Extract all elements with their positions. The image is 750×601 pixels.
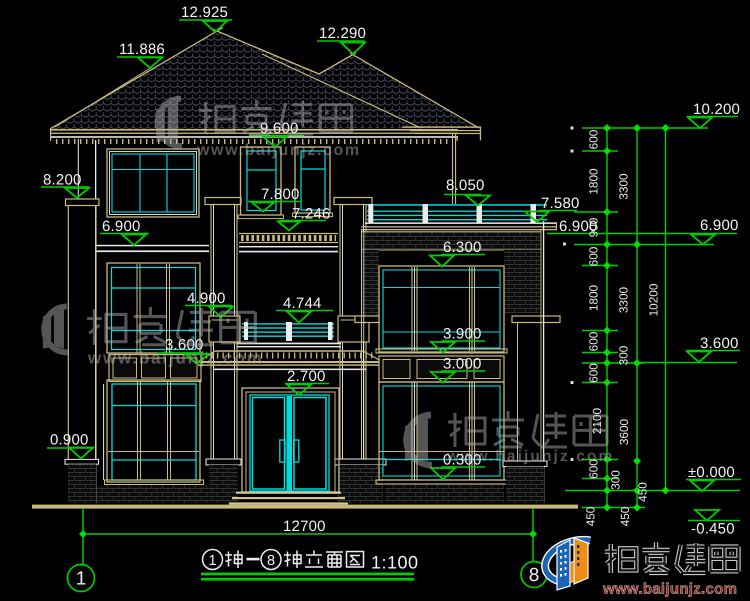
svg-text:3.900: 3.900: [443, 326, 482, 343]
svg-text:3.600: 3.600: [700, 335, 739, 352]
svg-text:1800: 1800: [587, 284, 601, 311]
svg-text:www.baijunjz.com: www.baijunjz.com: [602, 581, 737, 598]
svg-text:6.300: 6.300: [443, 239, 482, 256]
svg-text:11.886: 11.886: [119, 41, 165, 58]
svg-text:www.baijunjz.com: www.baijunjz.com: [87, 349, 264, 368]
svg-text:600: 600: [587, 246, 601, 266]
svg-text:600: 600: [587, 363, 601, 383]
svg-text:8: 8: [267, 553, 275, 569]
svg-text:0.900: 0.900: [50, 432, 89, 449]
svg-text:10200: 10200: [647, 283, 661, 316]
svg-text:4.744: 4.744: [283, 295, 322, 312]
svg-text:8: 8: [529, 565, 540, 586]
svg-text:1:100: 1:100: [371, 553, 419, 573]
svg-text:7.800: 7.800: [261, 186, 300, 203]
svg-text:12700: 12700: [283, 518, 326, 535]
svg-text:12.290: 12.290: [319, 25, 366, 42]
svg-text:600: 600: [587, 331, 601, 351]
svg-text:450: 450: [618, 506, 632, 526]
svg-text:1: 1: [76, 569, 87, 590]
svg-text:300: 300: [609, 470, 623, 490]
svg-text:900: 900: [587, 217, 601, 237]
svg-text:1800: 1800: [587, 168, 601, 195]
svg-text:6.900: 6.900: [102, 218, 141, 235]
svg-text:www.baijunjz.com: www.baijunjz.com: [446, 448, 614, 465]
svg-text:10.200: 10.200: [693, 101, 740, 118]
svg-text:3.000: 3.000: [443, 356, 482, 373]
svg-text:3300: 3300: [617, 286, 631, 313]
svg-text:4.900: 4.900: [187, 290, 226, 307]
svg-text:300: 300: [617, 345, 631, 365]
svg-text:450: 450: [636, 482, 650, 502]
svg-text:3300: 3300: [617, 173, 631, 200]
svg-text:3600: 3600: [617, 418, 631, 445]
svg-text:±0.000: ±0.000: [688, 464, 735, 481]
svg-text:1: 1: [208, 553, 216, 569]
svg-text:12.925: 12.925: [181, 4, 228, 21]
svg-text:www.baijunjz.com: www.baijunjz.com: [196, 142, 361, 159]
svg-text:8.200: 8.200: [43, 172, 82, 189]
svg-text:600: 600: [587, 129, 601, 149]
svg-text:6.900: 6.900: [700, 217, 739, 234]
svg-text:8.050: 8.050: [446, 177, 485, 194]
svg-text:2.700: 2.700: [287, 368, 326, 385]
svg-text:450: 450: [584, 506, 598, 526]
svg-text:7.580: 7.580: [541, 195, 580, 212]
svg-text:-0.450: -0.450: [691, 521, 735, 538]
